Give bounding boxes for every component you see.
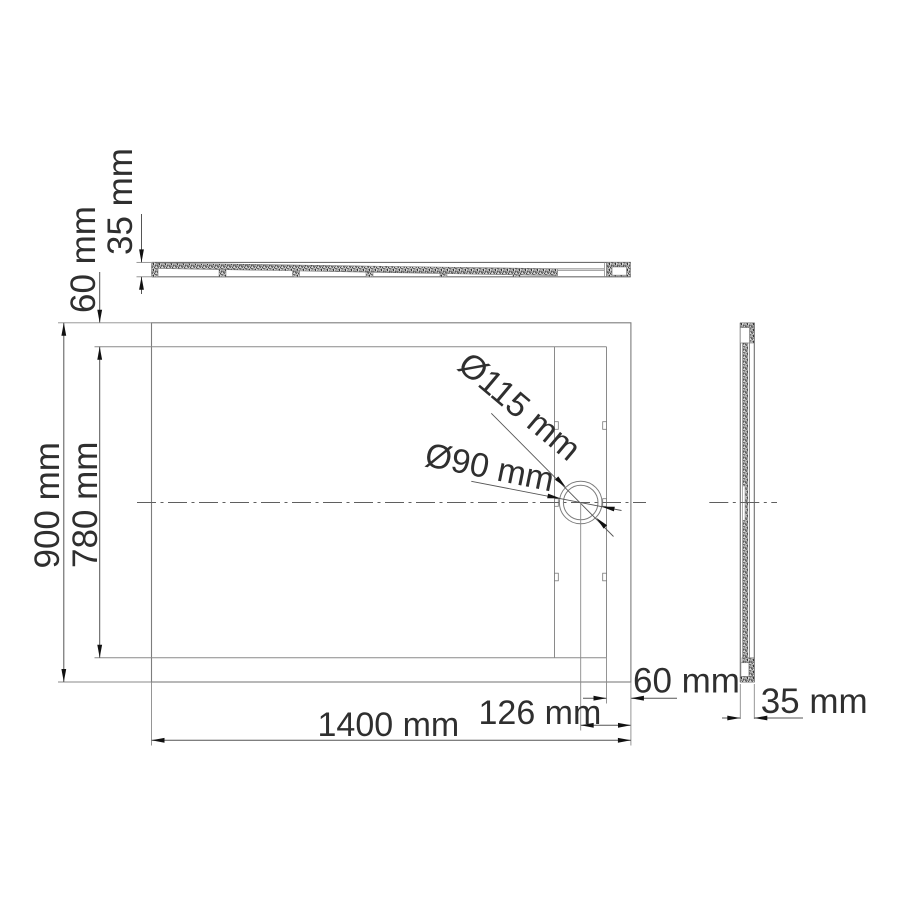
svg-text:35 mm: 35 mm — [761, 682, 868, 721]
svg-text:126 mm: 126 mm — [479, 694, 602, 732]
svg-text:60 mm: 60 mm — [633, 662, 740, 701]
svg-text:35 mm: 35 mm — [101, 148, 140, 255]
svg-text:60 mm: 60 mm — [64, 206, 103, 313]
svg-text:900 mm: 900 mm — [28, 442, 67, 568]
svg-text:780 mm: 780 mm — [66, 442, 105, 568]
svg-text:1400 mm: 1400 mm — [318, 706, 460, 744]
